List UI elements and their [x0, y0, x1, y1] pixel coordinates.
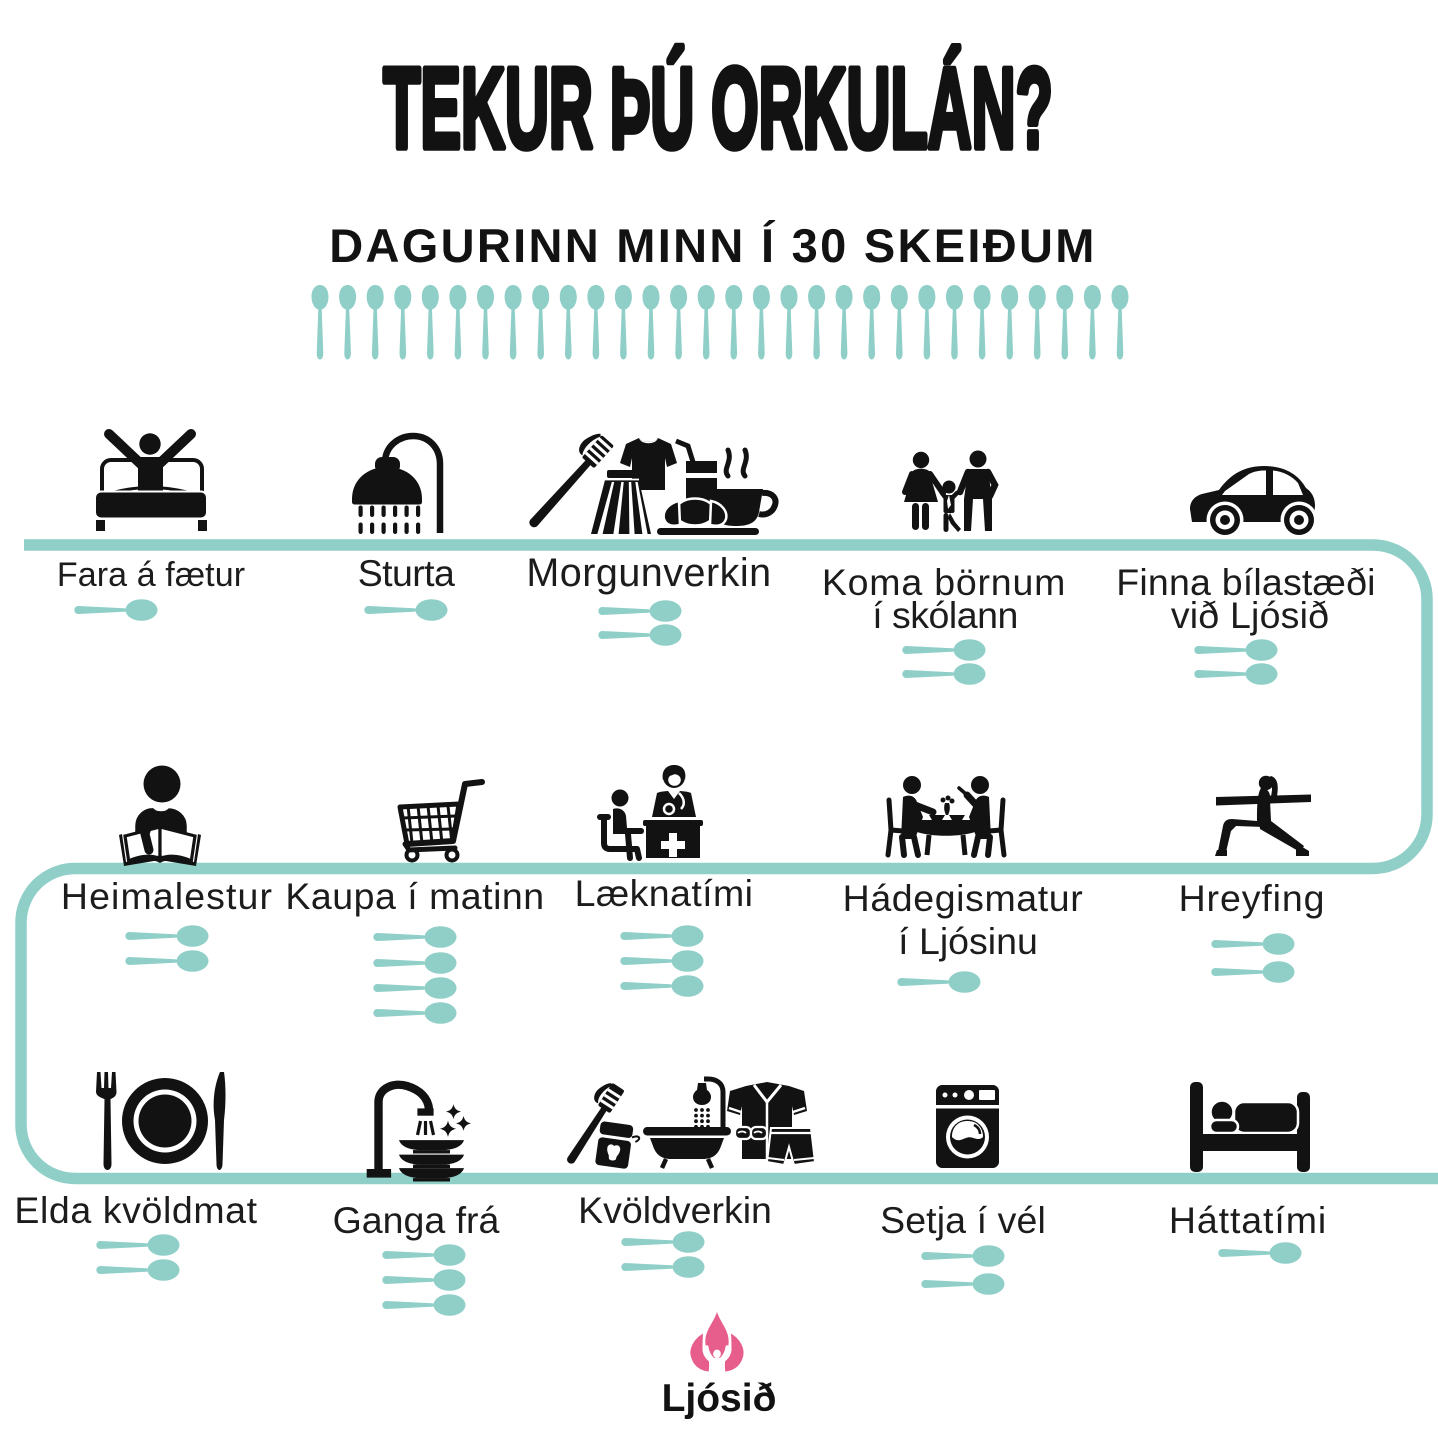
svg-text:Hádegismatur: Hádegismatur — [843, 877, 1084, 919]
svg-text:Ljósið: Ljósið — [662, 1377, 777, 1420]
svg-text:við Ljósið: við Ljósið — [1171, 594, 1329, 636]
svg-text:í skólann: í skólann — [872, 594, 1018, 636]
svg-text:Læknatími: Læknatími — [575, 872, 754, 914]
svg-text:Fara á fætur: Fara á fætur — [57, 556, 245, 594]
svg-text:í Ljósinu: í Ljósinu — [898, 920, 1038, 962]
svg-text:Sturta: Sturta — [358, 552, 455, 594]
svg-text:Kaupa í matinn: Kaupa í matinn — [285, 875, 544, 917]
svg-text:Heimalestur: Heimalestur — [61, 875, 273, 917]
svg-text:Háttatími: Háttatími — [1169, 1199, 1327, 1241]
svg-text:Setja í vél: Setja í vél — [880, 1199, 1046, 1241]
svg-text:Kvöldverkin: Kvöldverkin — [578, 1189, 772, 1231]
svg-text:Ganga frá: Ganga frá — [333, 1199, 500, 1241]
svg-text:TEKUR ÞÚ ORKULÁN?: TEKUR ÞÚ ORKULÁN? — [383, 45, 1053, 172]
svg-text:Morgunverkin: Morgunverkin — [526, 551, 771, 595]
svg-text:Elda kvöldmat: Elda kvöldmat — [14, 1189, 257, 1231]
svg-text:Hreyfing: Hreyfing — [1179, 877, 1326, 919]
svg-text:DAGURINN MINN Í 30 SKEIÐUM: DAGURINN MINN Í 30 SKEIÐUM — [329, 219, 1096, 272]
